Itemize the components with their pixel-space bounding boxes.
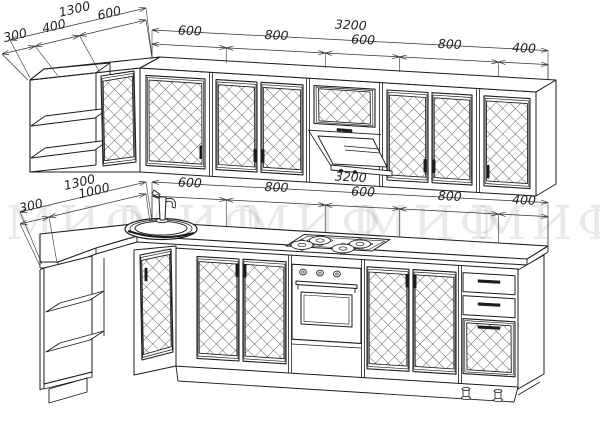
dimension-label: 800 <box>438 36 463 52</box>
dimension-label: 600 <box>178 22 203 38</box>
dimension-label: 600 <box>351 31 376 47</box>
lower-corner-open-shelf <box>40 256 104 403</box>
dimension-label: 600 <box>351 183 376 199</box>
corner-sink-lattice-door <box>140 249 173 360</box>
upper-lattice-door <box>484 96 530 189</box>
dimension-label: 800 <box>264 27 289 43</box>
lower-lattice-door <box>197 256 239 361</box>
dimension-label: 600 <box>178 174 203 190</box>
kitchen-drawing-page: МИФМИФМИФМИФМИФ 130030040060032006008006… <box>0 0 600 424</box>
dimension-label: 800 <box>438 188 463 204</box>
dimension-label: 400 <box>40 16 67 36</box>
dimension-label: 800 <box>264 179 289 195</box>
dimension-label: 600 <box>96 3 123 23</box>
dimension-label: 400 <box>512 192 537 208</box>
kitchen-technical-drawing: МИФМИФМИФМИФМИФ 130030040060032006008006… <box>0 0 600 424</box>
upper-lattice-door <box>387 90 428 183</box>
dimension-label: 400 <box>512 40 537 56</box>
lower-lattice-door <box>243 259 286 364</box>
upper-lattice-door <box>146 75 205 168</box>
lower-lattice-door <box>413 270 456 375</box>
upper-lattice-door <box>432 93 472 185</box>
upper-wing-lattice-door <box>101 71 136 166</box>
upper-cabinets-drawing <box>30 57 556 196</box>
upper-lattice-door <box>261 82 303 175</box>
dimension-label: 300 <box>2 25 29 45</box>
lower-lattice-door <box>367 267 409 372</box>
upper-lattice-door <box>216 80 257 173</box>
oven-drawing <box>292 264 361 348</box>
